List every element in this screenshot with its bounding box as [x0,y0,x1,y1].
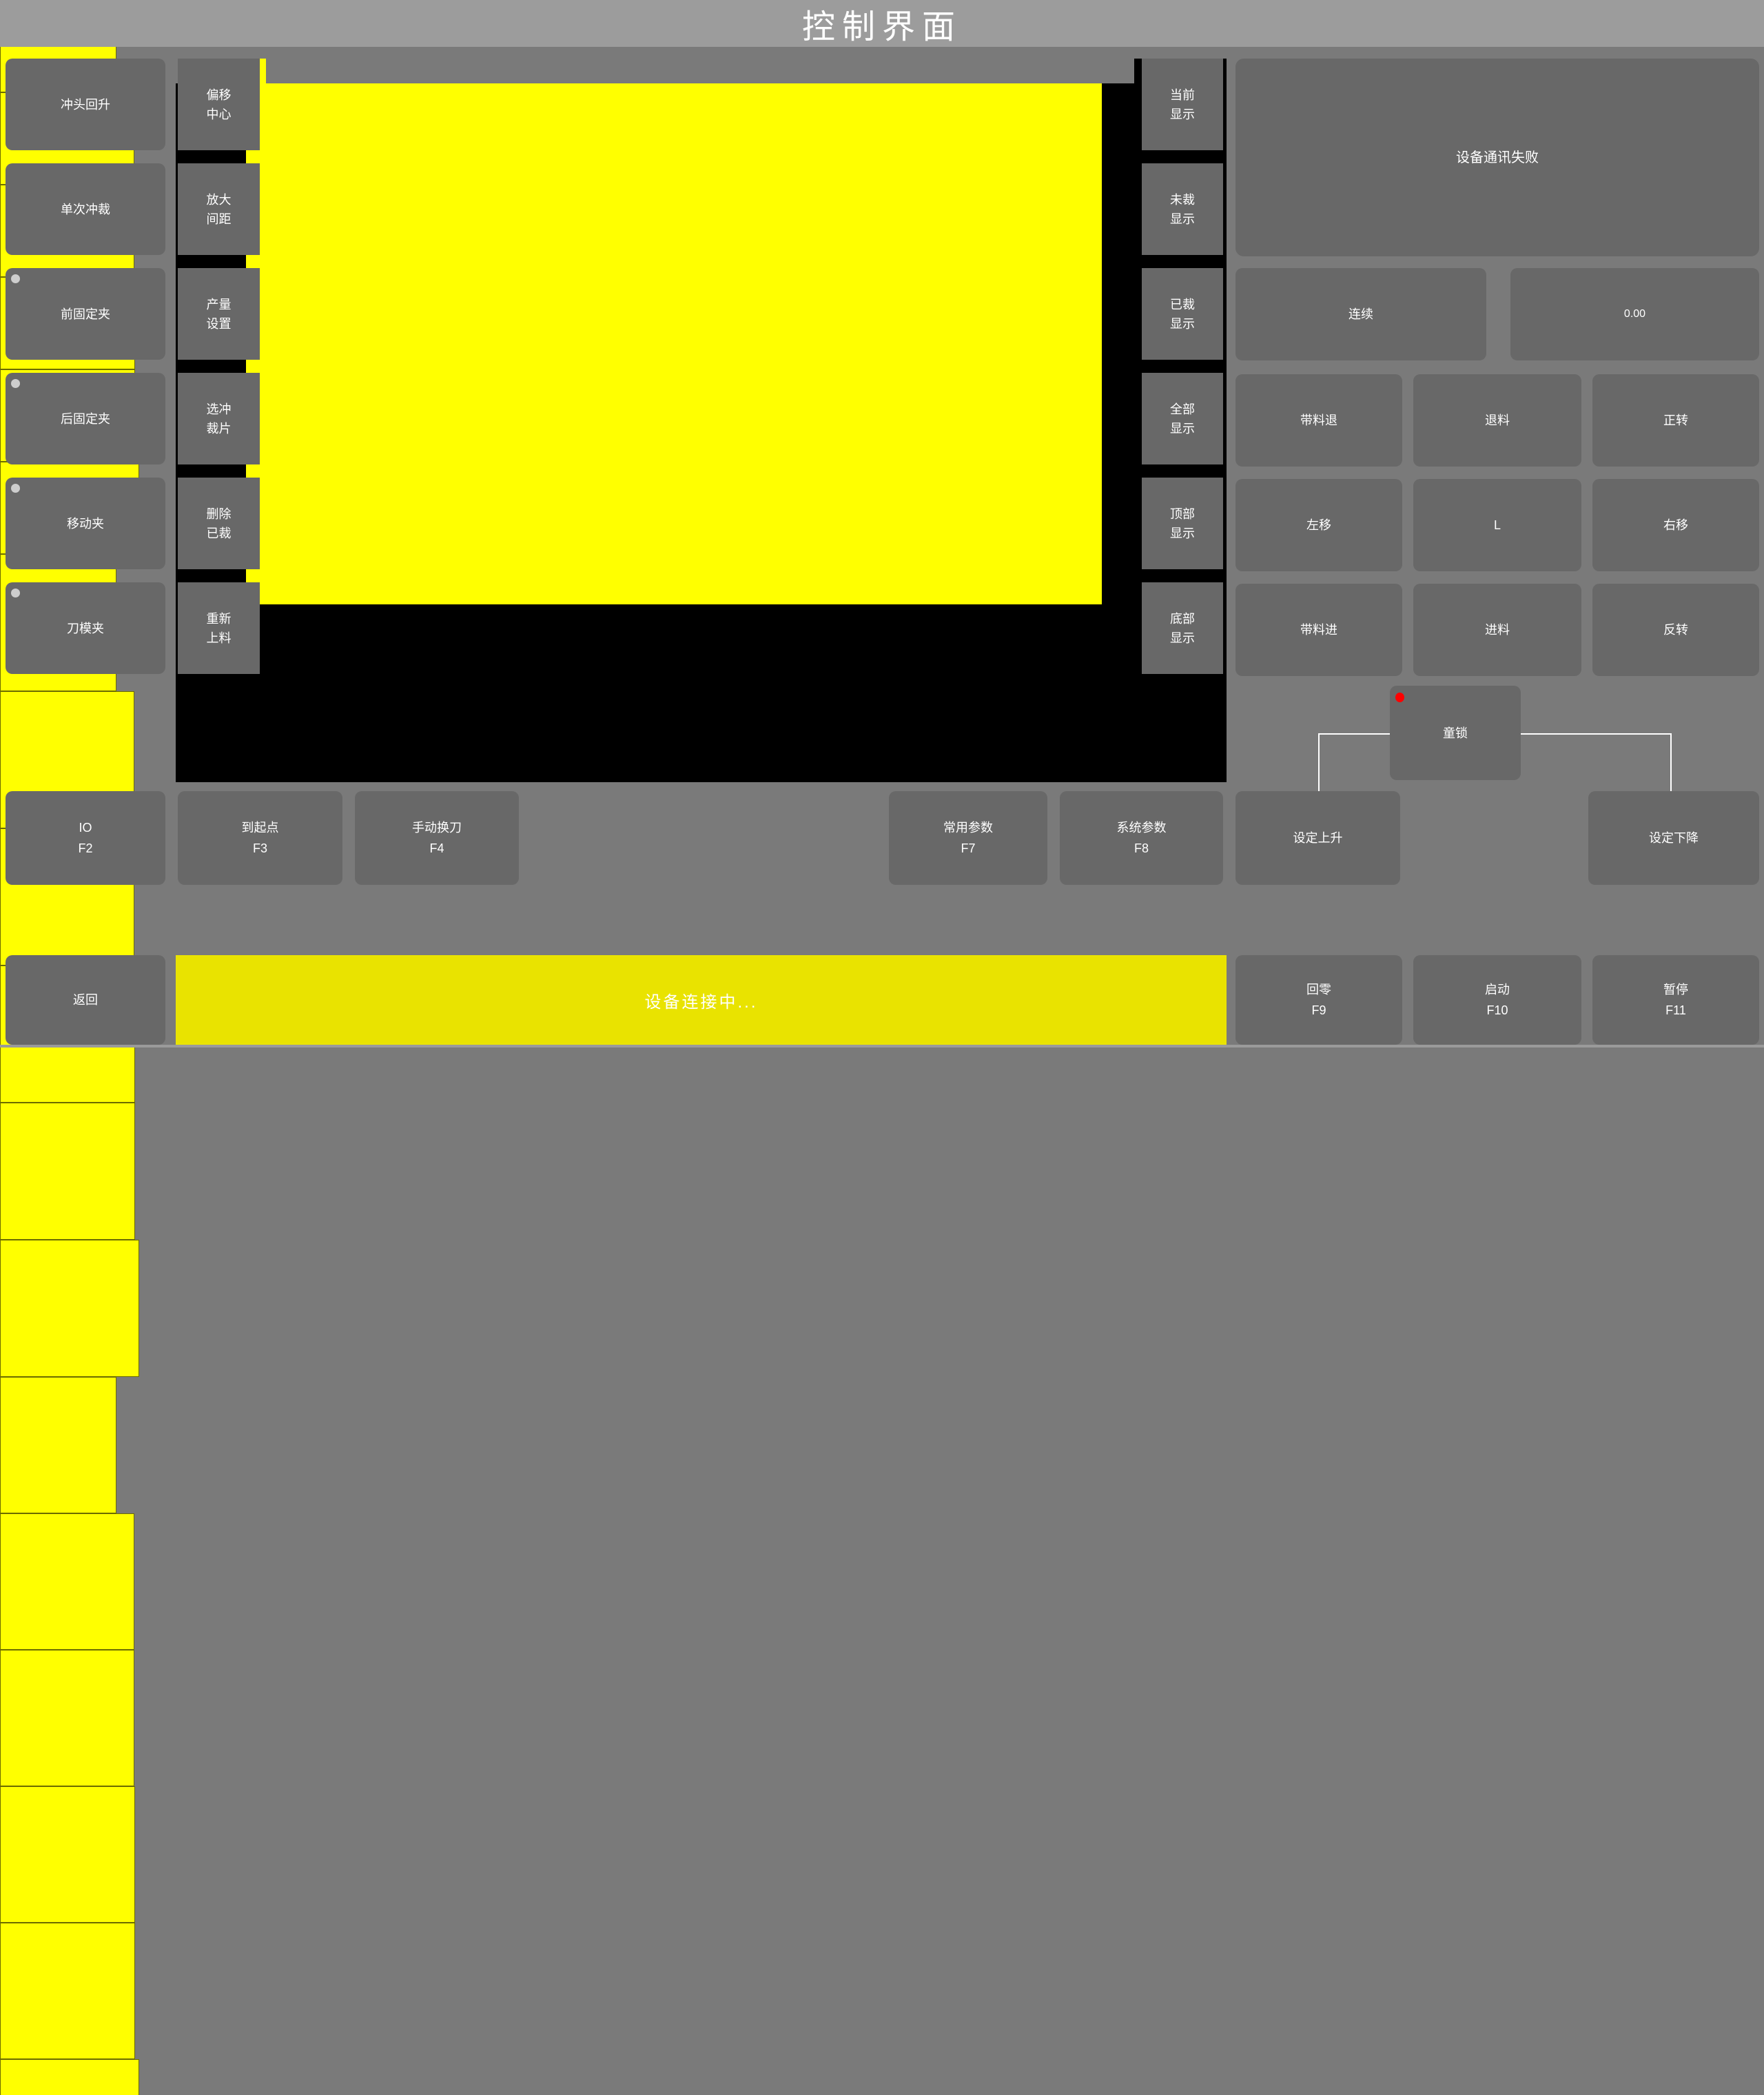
tool-button-label-line: 间距 [207,209,232,229]
function-key-label: 到起点 [242,817,279,838]
function-key-label: 常用参数 [943,817,993,838]
function-key-code: F4 [429,838,444,859]
grid-cell[interactable] [0,1103,135,1240]
machine-toggle-button[interactable]: 后固定夹 [6,373,165,464]
child-lock-link-line-right [1670,733,1672,793]
bottom-function-key-button[interactable]: 暂停F11 [1592,955,1759,1045]
tool-button-label-line: 偏移 [207,85,232,105]
machine-toggle-button[interactable]: 移动夹 [6,478,165,569]
bottom-function-key-code: F11 [1665,1000,1686,1021]
tool-button-label-line: 裁片 [207,419,232,438]
bottom-edge-strip [0,1045,1764,1047]
machine-toggle-button[interactable]: 冲头回升 [6,59,165,150]
set-rise-button[interactable]: 设定上升 [1235,791,1400,885]
function-key-code: F8 [1134,838,1149,859]
machine-toggle-label: 后固定夹 [61,409,110,429]
display-filter-label-line: 已裁 [1170,295,1195,314]
set-fall-button[interactable]: 设定下降 [1588,791,1759,885]
canvas-top-band [176,59,1134,83]
machine-toggle-label: 刀模夹 [67,619,104,638]
function-key-label: 手动换刀 [412,817,462,838]
tool-button-label-line: 设置 [207,314,232,334]
jog-button[interactable]: 右移 [1592,479,1759,571]
grid-cell[interactable] [0,1240,139,1377]
grid-cell[interactable] [0,1923,135,2059]
tool-button-label-line: 中心 [207,105,232,124]
display-filter-label-line: 显示 [1170,209,1195,229]
page-title: 控制界面 [802,0,962,48]
function-key-code: F2 [78,838,92,859]
display-filter-label-line: 当前 [1170,85,1195,105]
machine-toggle-button[interactable]: 刀模夹 [6,582,165,674]
tool-button-label-line: 产量 [207,295,232,314]
clamp-state-indicator-icon [11,589,20,597]
mode-button[interactable]: 连续 [1235,268,1486,360]
tool-button-label-line: 重新 [207,609,232,628]
display-filter-label-line: 显示 [1170,524,1195,543]
clamp-state-indicator-icon [11,484,20,493]
display-filter-button[interactable]: 当前显示 [1142,59,1223,150]
grid-cell[interactable] [0,2059,139,2095]
bottom-function-key-label: 回零 [1306,979,1331,1000]
function-key-code: F7 [961,838,975,859]
function-key-code: F3 [253,838,267,859]
child-lock-link-line-left [1318,733,1320,793]
material-sheet [266,83,1102,604]
grid-cell[interactable] [0,1513,134,1650]
jog-button[interactable]: 进料 [1413,584,1581,676]
bottom-function-key-button[interactable]: 启动F10 [1413,955,1581,1045]
child-lock-button[interactable]: 童锁 [1390,686,1521,780]
machine-toggle-button[interactable]: 单次冲裁 [6,163,165,255]
back-button[interactable]: 返回 [6,955,165,1045]
child-lock-indicator-icon [1395,693,1404,702]
tool-button-label-line: 删除 [207,504,232,524]
display-filter-button[interactable]: 已裁显示 [1142,268,1223,360]
grid-cell[interactable] [0,1650,134,1786]
grid-cell[interactable] [0,1377,116,1513]
function-key-button[interactable]: IOF2 [6,791,165,885]
tool-button-label-line: 选冲 [207,400,232,419]
tool-button-label-line: 上料 [207,628,232,648]
function-key-button[interactable]: 到起点F3 [178,791,342,885]
function-key-button[interactable]: 常用参数F7 [889,791,1047,885]
jog-button[interactable]: 退料 [1413,374,1581,467]
clamp-state-indicator-icon [11,274,20,283]
title-bar: 控制界面 [0,0,1764,47]
jog-button[interactable]: L [1413,479,1581,571]
jog-button[interactable]: 带料退 [1235,374,1402,467]
machine-toggle-label: 移动夹 [67,514,104,533]
display-filter-label-line: 显示 [1170,105,1195,124]
display-filter-label-line: 底部 [1170,609,1195,628]
function-key-label: IO [79,817,92,838]
jog-button[interactable]: 带料进 [1235,584,1402,676]
bottom-function-key-code: F10 [1486,1000,1508,1021]
tool-button[interactable]: 产量设置 [178,268,260,360]
bottom-function-key-code: F9 [1311,1000,1326,1021]
jog-button[interactable]: 左移 [1235,479,1402,571]
tool-button-label-line: 放大 [207,190,232,209]
bottom-function-key-button[interactable]: 回零F9 [1235,955,1402,1045]
tool-button[interactable]: 偏移中心 [178,59,260,150]
jog-button[interactable]: 反转 [1592,584,1759,676]
display-filter-label-line: 显示 [1170,314,1195,334]
display-filter-label-line: 未裁 [1170,190,1195,209]
machine-toggle-label: 前固定夹 [61,305,110,324]
tool-button-label-line: 已裁 [207,524,232,543]
tool-button[interactable]: 放大间距 [178,163,260,255]
device-status-panel: 设备通讯失败 [1235,59,1759,256]
tool-button[interactable]: 重新上料 [178,582,260,674]
display-filter-button[interactable]: 底部显示 [1142,582,1223,674]
jog-button[interactable]: 正转 [1592,374,1759,467]
display-filter-label-line: 顶部 [1170,504,1195,524]
child-lock-label: 童锁 [1443,724,1468,743]
grid-cell[interactable] [0,1786,135,1923]
function-key-label: 系统参数 [1117,817,1167,838]
display-filter-button[interactable]: 全部显示 [1142,373,1223,464]
bottom-function-key-label: 暂停 [1663,979,1688,1000]
function-key-button[interactable]: 手动换刀F4 [355,791,519,885]
tool-button[interactable]: 删除已裁 [178,478,260,569]
clamp-state-indicator-icon [11,379,20,388]
machine-toggle-button[interactable]: 前固定夹 [6,268,165,360]
function-key-button[interactable]: 系统参数F8 [1060,791,1223,885]
display-filter-label-line: 显示 [1170,628,1195,648]
display-filter-button[interactable]: 顶部显示 [1142,478,1223,569]
value-display: 0.00 [1510,268,1759,360]
display-filter-label-line: 显示 [1170,419,1195,438]
connection-status-bar: 设备连接中... [176,955,1227,1045]
machine-toggle-label: 冲头回升 [61,95,110,114]
bottom-function-key-label: 启动 [1485,979,1510,1000]
tool-button[interactable]: 选冲裁片 [178,373,260,464]
machine-toggle-label: 单次冲裁 [61,200,110,219]
display-filter-button[interactable]: 未裁显示 [1142,163,1223,255]
display-filter-label-line: 全部 [1170,400,1195,419]
